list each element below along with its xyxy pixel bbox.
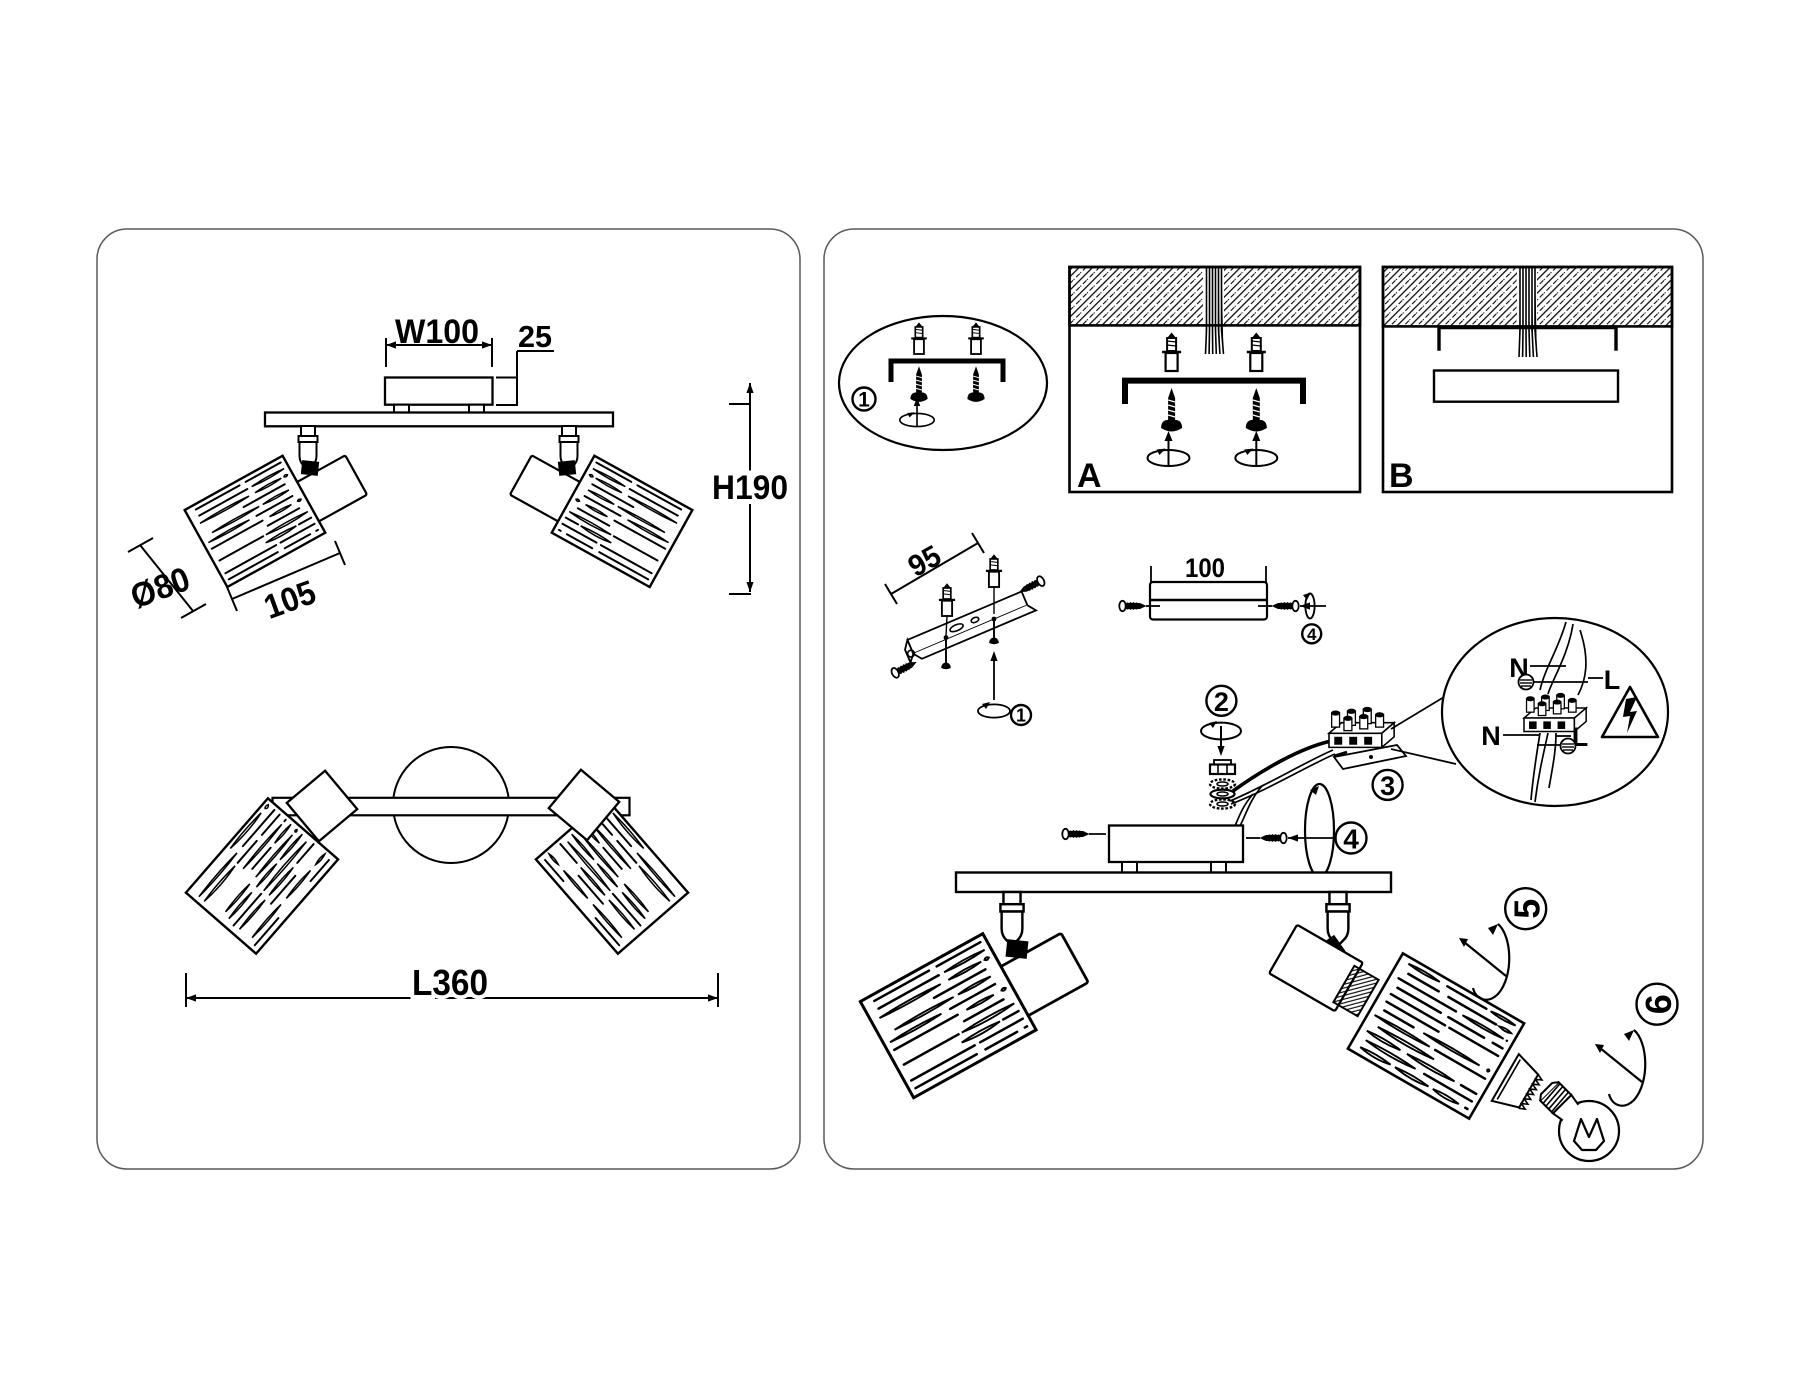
svg-text:100: 100 [1185, 553, 1225, 583]
svg-text:1: 1 [858, 388, 870, 411]
svg-text:3: 3 [1380, 771, 1395, 801]
svg-text:4: 4 [1307, 625, 1317, 644]
svg-text:L: L [1604, 665, 1621, 695]
svg-text:1: 1 [1016, 706, 1026, 726]
svg-text:B: B [1389, 457, 1414, 495]
svg-text:4: 4 [1343, 824, 1359, 855]
svg-text:6: 6 [1638, 994, 1679, 1014]
svg-text:5: 5 [1507, 899, 1548, 919]
svg-text:2: 2 [1214, 687, 1229, 717]
svg-text:A: A [1077, 457, 1102, 495]
svg-text:H190: H190 [712, 469, 788, 507]
svg-text:N: N [1481, 721, 1501, 751]
svg-text:L360: L360 [412, 962, 488, 1003]
svg-text:25: 25 [518, 319, 552, 354]
